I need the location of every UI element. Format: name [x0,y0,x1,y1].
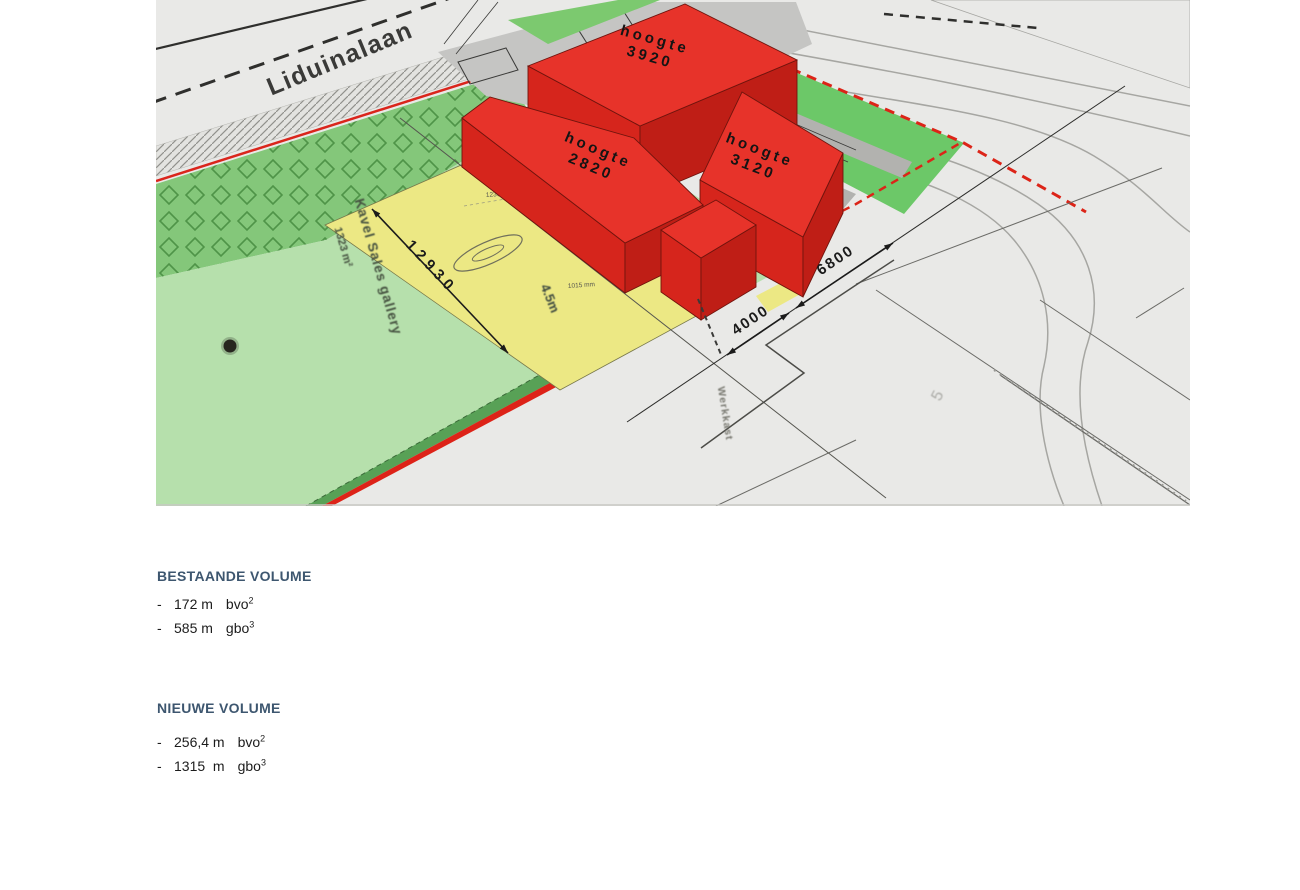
new-volume-title: NIEUWE VOLUME [157,700,577,716]
new-bvo-item: - 256,4 m bvo2 [157,730,577,754]
existing-gbo-item: - 585 m gbo3 [157,616,577,640]
page: Liduinalaan [0,0,1300,890]
new-bvo-value: 256,4 m [174,730,225,754]
site-plan-svg: Liduinalaan [156,0,1190,506]
new-gbo-unit: gbo3 [238,754,266,778]
site-plan-drawing: Liduinalaan [156,0,1190,506]
existing-gbo-unit: gbo3 [226,616,254,640]
existing-volume-section: BESTAANDE VOLUME - 172 m bvo2 - 585 m gb… [157,568,577,640]
existing-gbo-value: 585 m [174,616,213,640]
existing-bvo-item: - 172 m bvo2 [157,592,577,616]
existing-volume-title: BESTAANDE VOLUME [157,568,577,584]
existing-bvo-value: 172 m [174,592,213,616]
tree-icon [224,340,237,353]
new-gbo-item: - 1315 m gbo3 [157,754,577,778]
bullet-dash: - [157,592,174,616]
bullet-dash: - [157,616,174,640]
existing-bvo-unit: bvo2 [226,592,254,616]
bullet-dash: - [157,754,174,778]
new-bvo-unit: bvo2 [238,730,266,754]
new-volume-section: NIEUWE VOLUME - 256,4 m bvo2 - 1315 m gb… [157,700,577,778]
new-gbo-value: 1315 m [174,754,225,778]
bullet-dash: - [157,730,174,754]
